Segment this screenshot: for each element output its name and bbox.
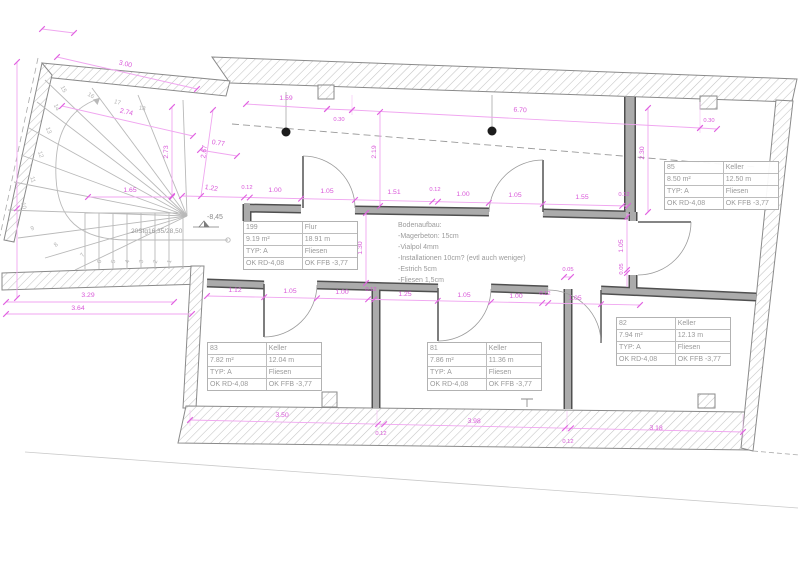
dim-label: 2.74 bbox=[119, 108, 134, 118]
room-perimeter: 12.04 m bbox=[267, 355, 321, 367]
room-table-82: 82 Keller 7.94 m² 12.13 m TYP: A Fliesen… bbox=[616, 317, 731, 366]
level-marker: -8,45 bbox=[193, 214, 223, 227]
note-title: Bodenaufbau: bbox=[398, 220, 526, 231]
dim-label: 1.00 bbox=[509, 293, 522, 300]
dim-label: 6.70 bbox=[513, 107, 527, 115]
room-floor: Fliesen bbox=[487, 367, 541, 379]
room-ok-ffb: OK FFB -3,77 bbox=[303, 258, 357, 269]
dim-label: 3.98 bbox=[467, 418, 481, 425]
dim-label: 0.12 bbox=[562, 439, 573, 445]
room-table-81: 81 Keller 7.86 m² 11.36 m TYP: A Fliesen… bbox=[427, 342, 542, 391]
dim-label: 1.05 bbox=[320, 188, 333, 195]
tread-number: 6 bbox=[97, 259, 104, 264]
dim-line bbox=[42, 29, 74, 33]
room-floor: Fliesen bbox=[724, 186, 778, 198]
floorplan-canvas: 20Stg16,35/28,50 1 2 3 4 5 6 7 8 9 10 11… bbox=[0, 0, 800, 565]
room-number: 81 bbox=[428, 343, 487, 355]
room-name: Flur bbox=[303, 222, 357, 234]
tread-number: 8 bbox=[53, 241, 60, 248]
room-name: Keller bbox=[724, 162, 778, 174]
section-mark bbox=[521, 399, 533, 407]
note-line: -Vialpol 4mm bbox=[398, 242, 526, 253]
dim-label: 3.64 bbox=[71, 305, 84, 312]
wall-fill bbox=[207, 283, 264, 285]
wall-left bbox=[4, 63, 52, 242]
stair-label: 20Stg16,35/28,50 bbox=[131, 228, 183, 235]
room-perimeter: 11.36 m bbox=[487, 355, 541, 367]
room-table-85: 85 Keller 8.50 m² 12.50 m TYP: A Fliesen… bbox=[664, 161, 779, 210]
stair-winder bbox=[45, 216, 187, 258]
room-ok-rd: OK RD-4,08 bbox=[665, 198, 724, 209]
room-floor: Fliesen bbox=[267, 367, 321, 379]
tread-number: 12 bbox=[36, 151, 44, 160]
room-area: 9.19 m² bbox=[244, 234, 303, 246]
dim-label: 0.30 bbox=[333, 117, 344, 123]
room-name: Keller bbox=[487, 343, 541, 355]
stair-winder bbox=[29, 128, 187, 216]
drain-point-2 bbox=[488, 127, 497, 136]
tread-number: 1 bbox=[167, 259, 174, 264]
wall-right bbox=[741, 100, 793, 451]
note-line: -Fliesen 1,5cm bbox=[398, 275, 526, 286]
tread-number: 5 bbox=[111, 259, 118, 264]
room-perimeter: 12.50 m bbox=[724, 174, 778, 186]
room-name: Keller bbox=[267, 343, 321, 355]
dim-label: 1.30 bbox=[357, 241, 364, 254]
dim-label: 1.59 bbox=[279, 95, 292, 102]
tread-number: 15 bbox=[59, 85, 68, 94]
room-type: TYP: A bbox=[244, 246, 303, 258]
wall-bottom bbox=[178, 406, 752, 450]
tread-number: 11 bbox=[28, 176, 36, 184]
floor-construction-note: Bodenaufbau: -Magerbeton: 15cm -Vialpol … bbox=[398, 220, 526, 286]
walkline-arrow bbox=[93, 98, 100, 105]
room-area: 7.86 m² bbox=[428, 355, 487, 367]
dim-label: 2.73 bbox=[163, 145, 170, 158]
room-ok-ffb: OK FFB -3,77 bbox=[267, 379, 321, 390]
dim-label: 1.00 bbox=[456, 191, 469, 198]
room-type: TYP: A bbox=[428, 367, 487, 379]
room-floor: Fliesen bbox=[303, 246, 357, 258]
wall-fill bbox=[244, 208, 301, 209]
dim-label: 0.77 bbox=[211, 139, 225, 148]
stair-winder bbox=[183, 100, 187, 216]
tread-number: 4 bbox=[125, 259, 132, 264]
wall-fill bbox=[355, 210, 489, 212]
dim-label: 0.12 bbox=[539, 291, 550, 297]
room-ok-rd: OK RD-4,08 bbox=[617, 354, 676, 365]
wall-stair-bottom bbox=[2, 266, 203, 290]
room-area: 7.94 m² bbox=[617, 330, 676, 342]
room-type: TYP: A bbox=[208, 367, 267, 379]
boundary-dashed-line bbox=[753, 451, 799, 455]
dim-label: 0.05 bbox=[562, 267, 573, 273]
dim-label: 1.65 bbox=[123, 187, 136, 194]
dim-label: 0.12 bbox=[241, 185, 252, 191]
room-table-83: 83 Keller 7.82 m² 12.04 m TYP: A Fliesen… bbox=[207, 342, 322, 391]
room-perimeter: 12.13 m bbox=[676, 330, 730, 342]
dim-line bbox=[246, 104, 327, 109]
wall-stair-top bbox=[42, 63, 230, 96]
dim-label: 3.29 bbox=[81, 292, 94, 299]
dim-label: 1.05 bbox=[568, 295, 581, 302]
wall-fill bbox=[491, 288, 548, 290]
dim-label: 1.05 bbox=[283, 288, 296, 295]
room-ok-ffb: OK FFB -3,77 bbox=[676, 354, 730, 365]
tread-number: 18 bbox=[138, 106, 146, 113]
shaft-square-top-left bbox=[318, 85, 334, 99]
room-number: 85 bbox=[665, 162, 724, 174]
tread-number: 2 bbox=[153, 259, 160, 264]
dim-label: 1.05 bbox=[618, 239, 625, 252]
room-ok-rd: OK RD-4,08 bbox=[428, 379, 487, 390]
dim-line bbox=[700, 128, 717, 129]
room-number: 199 bbox=[244, 222, 303, 234]
level-value: -8,45 bbox=[207, 214, 223, 221]
note-line: -Estrich 5cm bbox=[398, 264, 526, 275]
shaft-square-bottom-left bbox=[322, 392, 337, 407]
dim-label: 1.55 bbox=[575, 194, 588, 201]
dim-label: 0.12 bbox=[429, 187, 440, 193]
room-ok-rd: OK RD-4,08 bbox=[208, 379, 267, 390]
dim-label: 0.30 bbox=[703, 118, 714, 124]
drain-point-1 bbox=[282, 128, 291, 137]
wall-fill bbox=[601, 290, 756, 297]
tread-number: 3 bbox=[139, 259, 146, 264]
dim-label: 3.50 bbox=[275, 412, 289, 419]
dim-label: 1.00 bbox=[335, 289, 348, 296]
shaft-square-top-right bbox=[700, 96, 717, 109]
room-name: Keller bbox=[676, 318, 730, 330]
room-ok-ffb: OK FFB -3,77 bbox=[724, 198, 778, 209]
tread-number: 13 bbox=[44, 126, 52, 135]
stair-walkline bbox=[56, 98, 228, 240]
room-number: 83 bbox=[208, 343, 267, 355]
dim-label: 1.25 bbox=[398, 291, 411, 298]
note-line: -Magerbeton: 15cm bbox=[398, 231, 526, 242]
dim-label: 1.12 bbox=[228, 287, 241, 294]
room-ok-ffb: OK FFB -3,77 bbox=[487, 379, 541, 390]
room-area: 8.50 m² bbox=[665, 174, 724, 186]
dim-label: 3.00 bbox=[118, 60, 133, 70]
tread-number: 10 bbox=[19, 202, 26, 210]
dim-label: 1.51 bbox=[387, 189, 400, 196]
door-arc bbox=[303, 156, 355, 208]
wall-fill bbox=[543, 213, 628, 215]
wall-top bbox=[212, 57, 797, 102]
shaft-square-bottom-right bbox=[698, 394, 715, 408]
wall-rooms-left bbox=[183, 266, 204, 408]
room-number: 82 bbox=[617, 318, 676, 330]
stair-winder bbox=[21, 155, 187, 216]
tread-number: 14 bbox=[52, 103, 61, 112]
dim-label: 2.30 bbox=[639, 146, 646, 159]
dim-label: 0.05 bbox=[619, 263, 625, 274]
dim-label: 1.05 bbox=[508, 192, 521, 199]
dim-label: 0.12 bbox=[365, 287, 376, 293]
room-floor: Fliesen bbox=[676, 342, 730, 354]
room-ok-rd: OK RD-4,08 bbox=[244, 258, 303, 269]
dim-line bbox=[327, 109, 352, 110]
dim-label: 2.19 bbox=[371, 145, 378, 158]
tread-number: 17 bbox=[113, 99, 122, 107]
door-arc bbox=[638, 222, 691, 275]
tread-number: 7 bbox=[80, 252, 87, 259]
room-perimeter: 18.91 m bbox=[303, 234, 357, 246]
room-type: TYP: A bbox=[617, 342, 676, 354]
dim-label: 3.18 bbox=[649, 425, 663, 432]
dim-label: 0.12 bbox=[618, 192, 629, 198]
dim-label: 0.12 bbox=[375, 431, 386, 437]
room-table-199: 199 Flur 9.19 m² 18.91 m TYP: A Fliesen … bbox=[243, 221, 358, 270]
terrain-line bbox=[25, 452, 798, 508]
tread-number: 9 bbox=[30, 225, 36, 232]
dim-label: 1.22 bbox=[204, 184, 218, 193]
dim-label: 2.67 bbox=[200, 145, 209, 159]
room-area: 7.82 m² bbox=[208, 355, 267, 367]
dim-label: 1.00 bbox=[268, 187, 281, 194]
dim-label: 1.05 bbox=[457, 292, 470, 299]
note-line: -Installationen 10cm? (evtl auch weniger… bbox=[398, 253, 526, 264]
room-type: TYP: A bbox=[665, 186, 724, 198]
